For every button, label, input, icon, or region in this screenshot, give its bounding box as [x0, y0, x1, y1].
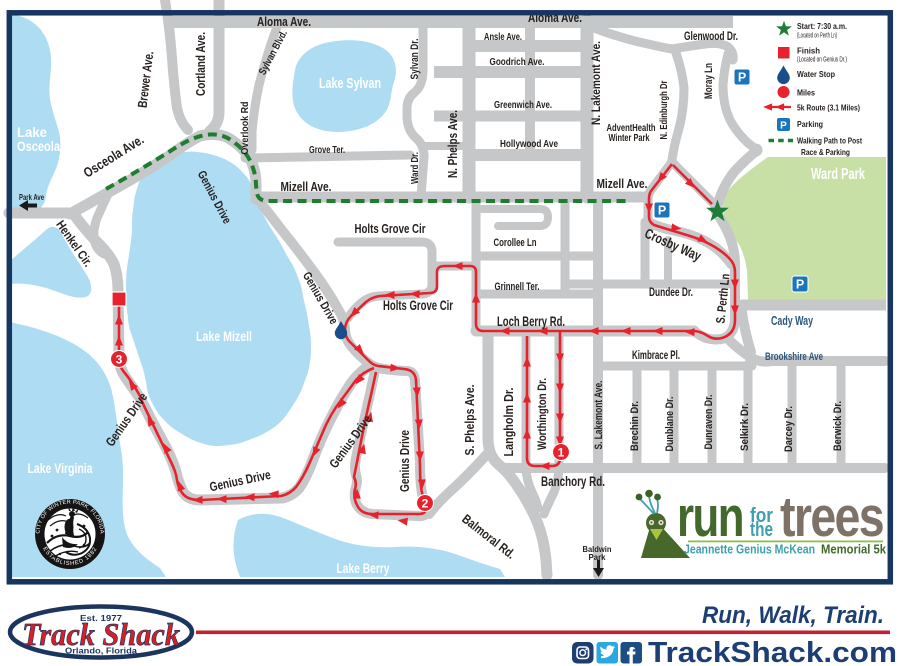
svg-text:Lake Berry: Lake Berry: [337, 561, 390, 576]
svg-text:Dunblane Dr.: Dunblane Dr.: [664, 397, 676, 452]
svg-text:(Located on Genius Dr.): (Located on Genius Dr.): [797, 57, 847, 64]
svg-text:Run, Walk, Train.: Run, Walk, Train.: [702, 602, 884, 629]
svg-text:Hollywood Ave: Hollywood Ave: [500, 138, 558, 150]
svg-text:N. Phelps Ave.: N. Phelps Ave.: [446, 110, 460, 178]
svg-text:Langholm Dr.: Langholm Dr.: [502, 388, 516, 457]
svg-text:(Located on Perth Ln): (Located on Perth Ln): [797, 33, 837, 40]
svg-text:P: P: [780, 121, 787, 132]
svg-text:Loch Berry Rd.: Loch Berry Rd.: [497, 313, 565, 329]
svg-text:Ward Park: Ward Park: [811, 166, 865, 183]
svg-text:Darcey Dr.: Darcey Dr.: [783, 406, 795, 452]
svg-text:Osceola: Osceola: [17, 139, 60, 154]
svg-text:Overlook Rd: Overlook Rd: [239, 102, 251, 155]
svg-text:Park: Park: [589, 552, 606, 562]
svg-text:Lake Virginia: Lake Virginia: [28, 461, 93, 476]
svg-text:Miles: Miles: [797, 88, 815, 98]
svg-text:Cady Way: Cady Way: [771, 313, 814, 328]
svg-text:Holts Grove Cir: Holts Grove Cir: [383, 297, 453, 313]
svg-text:Genius Drive: Genius Drive: [397, 430, 412, 492]
svg-text:N. Lakemont Ave.: N. Lakemont Ave.: [589, 41, 603, 125]
svg-text:Ward Dr.: Ward Dr.: [409, 152, 421, 184]
svg-text:Jeannette Genius McKean: Jeannette Genius McKean: [684, 543, 815, 557]
svg-text:Selkirk Dr.: Selkirk Dr.: [739, 403, 751, 451]
svg-text:Race & Parking: Race & Parking: [801, 147, 850, 157]
svg-text:Winter Park: Winter Park: [609, 133, 650, 144]
svg-text:run: run: [677, 485, 743, 549]
svg-text:Aloma Ave.: Aloma Ave.: [257, 14, 311, 29]
svg-text:Mizell Ave.: Mizell Ave.: [597, 176, 648, 191]
svg-text:Brechin Dr.: Brechin Dr.: [629, 401, 641, 451]
svg-text:S. Phelps Ave.: S. Phelps Ave.: [463, 385, 477, 456]
svg-text:TrackShack.com: TrackShack.com: [648, 637, 897, 666]
svg-text:Dundee Dr.: Dundee Dr.: [649, 287, 693, 299]
svg-text:Glenwood Dr.: Glenwood Dr.: [684, 31, 738, 43]
svg-text:P: P: [796, 278, 804, 292]
svg-text:Water Stop: Water Stop: [797, 69, 835, 79]
svg-text:5k Route (3.1 Miles): 5k Route (3.1 Miles): [797, 103, 860, 113]
svg-text:Parking: Parking: [797, 119, 823, 129]
svg-text:Memorial 5k: Memorial 5k: [821, 543, 886, 557]
svg-text:3: 3: [116, 353, 123, 367]
svg-text:Sylvan Dr.: Sylvan Dr.: [409, 39, 421, 80]
svg-text:1: 1: [558, 446, 565, 460]
svg-text:S. Lakemont Ave.: S. Lakemont Ave.: [593, 381, 605, 450]
svg-text:Grinnell Ter.: Grinnell Ter.: [495, 281, 540, 293]
svg-text:the: the: [750, 519, 773, 541]
svg-text:2: 2: [422, 497, 429, 511]
svg-text:Holts Grove Cir: Holts Grove Cir: [355, 222, 426, 236]
svg-text:Finish: Finish: [797, 46, 820, 56]
svg-text:trees: trees: [780, 485, 883, 549]
svg-text:Banchory Rd.: Banchory Rd.: [541, 474, 605, 489]
svg-text:Brookshire Ave: Brookshire Ave: [765, 351, 823, 363]
svg-text:Grove Ter.: Grove Ter.: [309, 145, 345, 156]
svg-text:Start: 7:30 a.m.: Start: 7:30 a.m.: [797, 21, 847, 31]
svg-text:Mizell Ave.: Mizell Ave.: [281, 179, 332, 194]
svg-text:Park Ave: Park Ave: [19, 192, 44, 202]
svg-text:Kimbrace Pl.: Kimbrace Pl.: [632, 350, 680, 362]
svg-text:Moray Ln: Moray Ln: [703, 63, 715, 99]
svg-text:P: P: [738, 71, 746, 85]
svg-text:Goodrich Ave.: Goodrich Ave.: [490, 56, 545, 68]
svg-text:Worthington Dr.: Worthington Dr.: [537, 378, 549, 450]
svg-text:Berwick Dr.: Berwick Dr.: [832, 401, 844, 451]
svg-text:Cortland Ave.: Cortland Ave.: [193, 32, 208, 96]
svg-text:Lake Sylvan: Lake Sylvan: [319, 76, 381, 92]
svg-text:Greenwich Ave.: Greenwich Ave.: [494, 99, 552, 111]
svg-text:Lake Mizell: Lake Mizell: [196, 329, 252, 344]
svg-text:Walking Path to Post: Walking Path to Post: [797, 136, 862, 146]
svg-text:Ansle Ave.: Ansle Ave.: [484, 31, 522, 43]
svg-text:P: P: [658, 204, 666, 218]
svg-text:Corollee Ln: Corollee Ln: [494, 237, 537, 249]
svg-text:Orlando, Florida: Orlando, Florida: [65, 646, 137, 656]
svg-text:N. Edinburgh Dr: N. Edinburgh Dr: [658, 81, 670, 140]
svg-text:Dunraven Dr.: Dunraven Dr.: [703, 395, 715, 450]
svg-text:Lake: Lake: [17, 125, 47, 140]
